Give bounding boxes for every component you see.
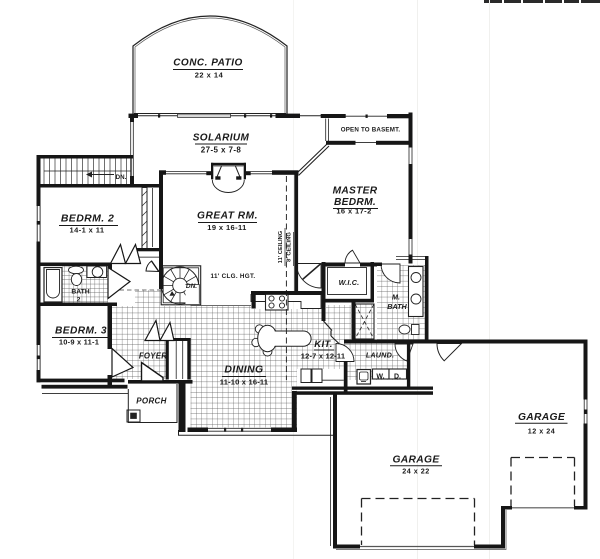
svg-text:BEDRM. 2: BEDRM. 2 [61,213,114,225]
svg-text:BATH: BATH [387,302,407,311]
svg-text:11-10 x 16-11: 11-10 x 16-11 [220,378,268,387]
svg-text:12-7 x 12-11: 12-7 x 12-11 [301,352,346,361]
svg-text:8' CEILING: 8' CEILING [287,232,293,262]
svg-text:W.I.C.: W.I.C. [339,278,360,287]
svg-text:11' CEILING: 11' CEILING [278,230,284,263]
svg-text:DN.: DN. [116,174,127,181]
svg-text:BATH: BATH [71,289,89,296]
svg-text:PORCH: PORCH [136,397,166,406]
svg-text:22 x 14: 22 x 14 [195,71,224,80]
svg-text:11' CLG. HGT.: 11' CLG. HGT. [211,273,256,280]
svg-text:SOLARIUM: SOLARIUM [193,133,250,144]
svg-text:LAUND.: LAUND. [366,351,394,360]
svg-text:GARAGE: GARAGE [518,412,566,423]
svg-text:GREAT RM.: GREAT RM. [197,211,258,222]
svg-text:KIT.: KIT. [314,339,332,350]
svg-text:24 x 22: 24 x 22 [402,467,429,476]
svg-text:M.: M. [392,293,400,302]
svg-text:OPEN TO BASEMT.: OPEN TO BASEMT. [341,127,401,134]
svg-text:27-5 x 7-8: 27-5 x 7-8 [201,146,242,155]
svg-text:16 x 17-2: 16 x 17-2 [336,207,371,216]
svg-text:2: 2 [77,297,81,304]
svg-text:14-1 x 11: 14-1 x 11 [70,226,105,235]
svg-text:BEDRM. 3: BEDRM. 3 [55,326,107,337]
svg-text:CONC. PATIO: CONC. PATIO [173,58,243,69]
svg-text:10-9 x 11-1: 10-9 x 11-1 [59,338,99,347]
svg-text:12 x 24: 12 x 24 [528,427,555,436]
svg-text:W.: W. [376,374,384,381]
svg-text:FOYER: FOYER [139,352,167,361]
svg-text:MASTER: MASTER [333,186,378,197]
svg-text:19 x 16-11: 19 x 16-11 [207,223,246,232]
svg-text:D.: D. [394,374,401,381]
svg-text:GARAGE: GARAGE [393,455,441,466]
svg-text:DN.: DN. [186,283,197,290]
svg-text:DINING: DINING [224,364,263,376]
